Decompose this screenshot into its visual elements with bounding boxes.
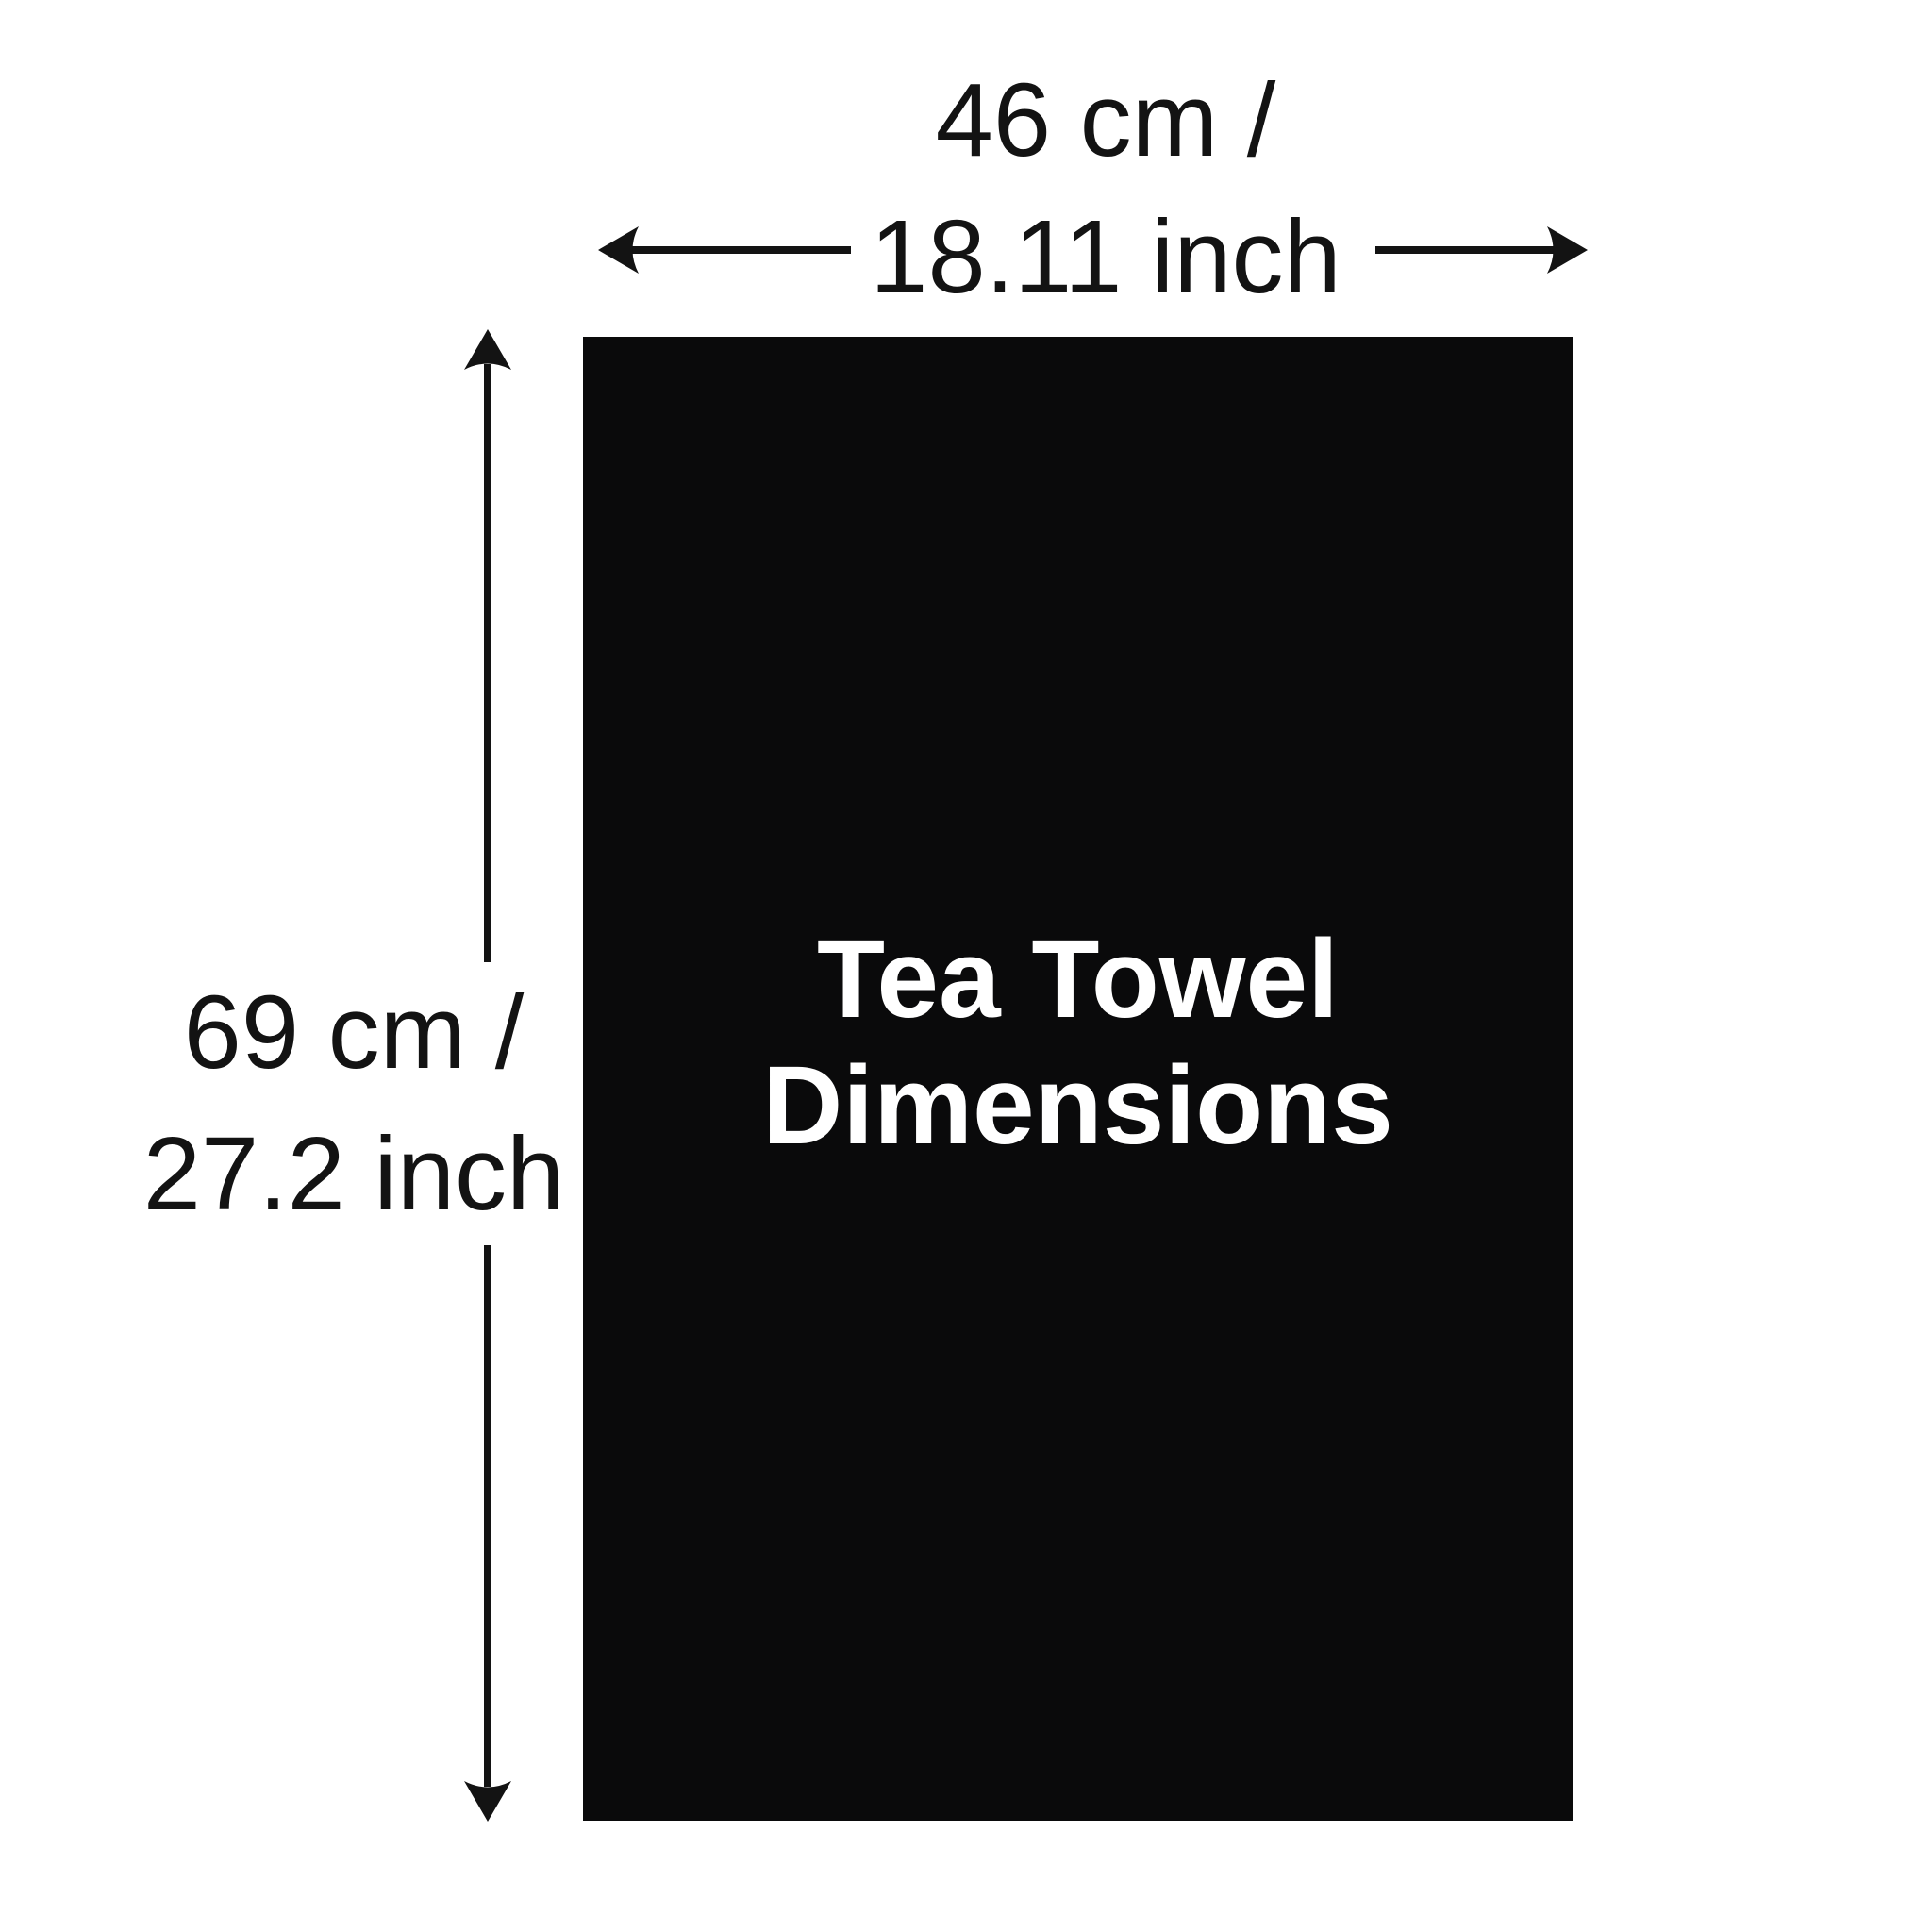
width-dimension-cm: 46 cm / (634, 52, 1577, 189)
towel-title-line1: Tea Towel (817, 917, 1339, 1041)
tea-towel-dimensions-diagram: Tea Towel Dimensions 46 cm / 18.11 inch … (0, 0, 1932, 1932)
arrowhead-left-icon (598, 226, 639, 274)
height-dimension-cm: 69 cm / (132, 962, 575, 1104)
height-dimension-label: 69 cm / 27.2 inch (132, 962, 575, 1245)
arrowhead-up-icon (464, 329, 511, 370)
arrowhead-down-icon (464, 1781, 511, 1822)
towel-title: Tea Towel Dimensions (762, 917, 1393, 1169)
height-dimension-inch: 27.2 inch (132, 1104, 575, 1245)
width-dimension-label: 46 cm / 18.11 inch (634, 52, 1577, 325)
towel-swatch: Tea Towel Dimensions (583, 337, 1573, 1821)
width-dimension-inch: 18.11 inch (634, 189, 1577, 325)
towel-title-line2: Dimensions (762, 1043, 1393, 1168)
